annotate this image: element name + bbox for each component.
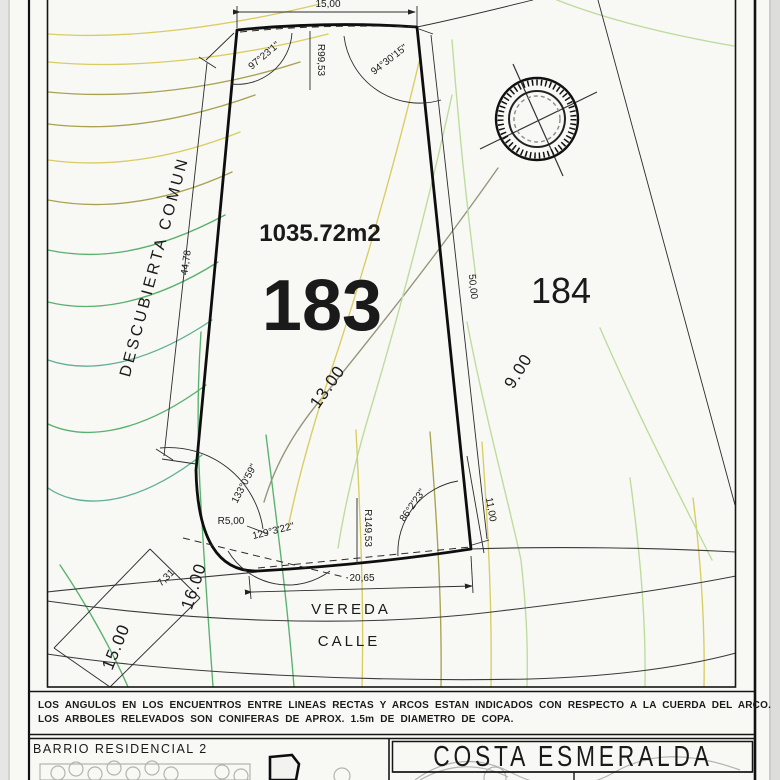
scan-gutter-left-edge [8, 0, 10, 780]
street-label-vereda: VEREDA [311, 601, 391, 618]
note-line-2: LOS ARBOLES RELEVADOS SON CONIFERAS DE A… [38, 714, 514, 725]
radius-top-value: R99,53 [315, 44, 326, 77]
survey-plan-page: 1035.72m2 183 184 DESCUBIERTA COMUN VERE… [0, 0, 780, 780]
lot-183-area: 1035.72m2 [259, 220, 380, 247]
radius-corner-value: R5,00 [218, 516, 245, 527]
keymap-highlighted-lot [270, 755, 299, 780]
street-label-calle: CALLE [318, 633, 381, 650]
note-line-1: LOS ANGULOS EN LOS ENCUENTROS ENTRE LINE… [38, 700, 771, 711]
lot-183-number: 183 [262, 266, 382, 346]
lot-184-number: 184 [531, 270, 591, 311]
project-title: COSTA ESMERALDA [433, 739, 713, 772]
dim-bottom-value: 20,65 [349, 573, 374, 584]
radius-bottom-value: R149,53 [362, 509, 373, 547]
scan-gutter-left [0, 0, 9, 780]
neighborhood-label: BARRIO RESIDENCIAL 2 [33, 742, 208, 756]
dim-top-value: 15,00 [315, 0, 340, 10]
plan-drawing: 1035.72m2 183 184 DESCUBIERTA COMUN VERE… [0, 0, 780, 780]
scan-gutter-right [771, 0, 780, 780]
scan-gutter-right-edge [769, 0, 771, 780]
